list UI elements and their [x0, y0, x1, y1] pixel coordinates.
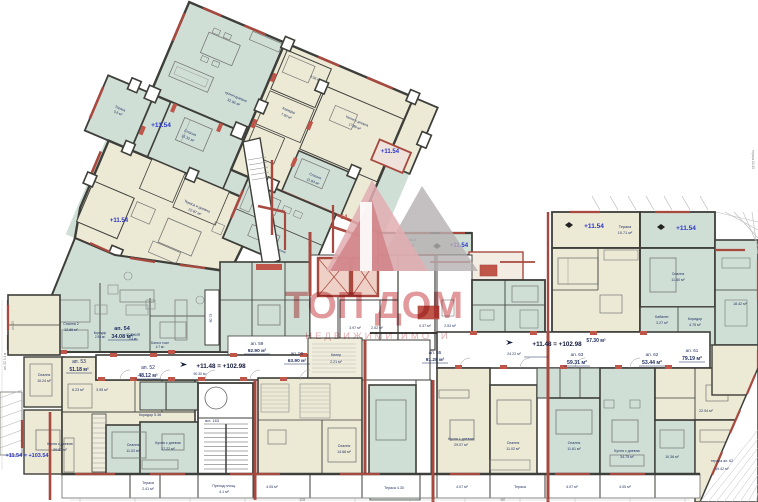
svg-text:53.44 м²: 53.44 м²: [642, 360, 662, 366]
svg-text:Кухня с дневна: Кухня с дневна: [47, 442, 72, 446]
svg-text:тераса 12.40: тераса 12.40: [751, 150, 755, 169]
svg-text:Коридор 5.36: Коридор 5.36: [139, 413, 161, 417]
svg-text:Преход площ.: Преход площ.: [212, 484, 235, 488]
svg-text:Спалня: Спалня: [568, 441, 581, 445]
svg-text:ап. 50: ап. 50: [291, 351, 304, 356]
svg-text:92.90 м²: 92.90 м²: [248, 348, 267, 354]
svg-text:Кухня с дневна: Кухня с дневна: [155, 441, 180, 445]
svg-text:+11.54 = +103.54: +11.54 = +103.54: [6, 453, 50, 459]
svg-text:+11.54: +11.54: [584, 223, 604, 230]
svg-text:19.42 м²: 19.42 м²: [715, 467, 729, 471]
svg-text:ап. 52 9.1 м: ап. 52 9.1 м: [3, 353, 7, 370]
svg-text:4.1 м²: 4.1 м²: [219, 490, 229, 494]
svg-text:50.30 м²: 50.30 м²: [194, 372, 208, 376]
svg-text:Кухня с дневна: Кухня с дневна: [614, 449, 639, 453]
svg-text:Тераса: Тераса: [514, 485, 526, 489]
svg-text:ап. 52: ап. 52: [141, 365, 155, 371]
svg-text:11.80 м²: 11.80 м²: [671, 278, 685, 282]
svg-text:2.98 м²: 2.98 м²: [95, 335, 105, 339]
svg-text:Кухня с дневна: Кухня с дневна: [448, 437, 473, 441]
svg-text:ТОП ДОМ: ТОП ДОМ: [285, 285, 463, 327]
svg-text:Спалня 2: Спалня 2: [63, 322, 79, 326]
svg-text:Килер: Килер: [331, 353, 341, 357]
svg-text:Спалня: Спалня: [38, 373, 51, 377]
svg-text:Спалня: Спалня: [127, 443, 140, 447]
svg-text:4.05 м²: 4.05 м²: [266, 485, 278, 489]
svg-text:22.94 м²: 22.94 м²: [699, 409, 713, 413]
svg-text:Тераса: Тераса: [142, 481, 154, 485]
svg-text:ап. 53: ап. 53: [72, 359, 86, 365]
svg-text:54: 54: [341, 215, 348, 221]
svg-text:ап. 63: ап. 63: [571, 352, 584, 357]
svg-text:4.07 м²: 4.07 м²: [566, 485, 578, 489]
svg-text:59.31 м²: 59.31 м²: [567, 360, 587, 366]
svg-text:Кабинет: Кабинет: [655, 315, 669, 319]
svg-text:60.73: 60.73: [209, 314, 213, 323]
svg-text:2.41 м²: 2.41 м²: [142, 487, 154, 491]
svg-text:+11.48 = +102.98: +11.48 = +102.98: [532, 341, 582, 348]
svg-text:Тераса: Тераса: [619, 225, 632, 229]
svg-text:2.21 м²: 2.21 м²: [330, 360, 342, 364]
svg-text:10.24 м²: 10.24 м²: [37, 379, 51, 383]
svg-text:51.18 м²: 51.18 м²: [69, 367, 89, 373]
svg-text:6.23 м²: 6.23 м²: [72, 388, 84, 392]
svg-text:Спалня: Спалня: [338, 444, 351, 448]
svg-text:ап. 59: ап. 59: [251, 341, 264, 346]
svg-text:63.90 м²: 63.90 м²: [288, 358, 307, 364]
svg-text:20.82 м²: 20.82 м²: [53, 448, 67, 452]
svg-text:тераса ап. 62: тераса ап. 62: [711, 459, 733, 463]
svg-text:11.03 м²: 11.03 м²: [126, 449, 140, 453]
svg-text:12.86 м²: 12.86 м²: [64, 328, 78, 332]
svg-text:48.12 м²: 48.12 м²: [138, 373, 158, 379]
svg-text:17.22 м²: 17.22 м²: [161, 447, 175, 451]
svg-text:11.61 м²: 11.61 м²: [567, 447, 581, 451]
svg-text:34.75 м²: 34.75 м²: [620, 455, 634, 459]
svg-text:4.7 м²: 4.7 м²: [156, 345, 165, 349]
svg-text:10.36 м²: 10.36 м²: [665, 455, 679, 459]
svg-text:+11.54: +11.54: [110, 218, 129, 224]
svg-text:57.30 м²: 57.30 м²: [586, 338, 606, 344]
svg-text:4.07 м²: 4.07 м²: [456, 485, 468, 489]
svg-text:Тераса 4.30: Тераса 4.30: [384, 486, 404, 490]
svg-text:ап. 54: ап. 54: [114, 326, 130, 332]
svg-text:ап. 53: ап. 53: [11, 321, 15, 330]
svg-text:Спалня: Спалня: [672, 272, 685, 276]
svg-text:Спалня: Спалня: [507, 441, 520, 445]
svg-text:4.75 м²: 4.75 м²: [689, 323, 701, 327]
svg-text:3.27 м²: 3.27 м²: [656, 321, 668, 325]
svg-text:ап. 65: ап. 65: [429, 350, 442, 355]
svg-text:+11.54: +11.54: [151, 122, 171, 129]
svg-text:3.95 м²: 3.95 м²: [96, 388, 108, 392]
svg-text:24.22 м²: 24.22 м²: [507, 352, 521, 356]
svg-text:+11.54: +11.54: [676, 225, 696, 232]
svg-text:Коридор: Коридор: [688, 317, 702, 321]
svg-text:29.07 м²: 29.07 м²: [454, 443, 468, 447]
svg-text:10.71 м²: 10.71 м²: [618, 231, 633, 235]
svg-text:+11.48 = +102.98: +11.48 = +102.98: [196, 363, 246, 370]
svg-text:91.28 м²: 91.28 м²: [426, 357, 445, 363]
svg-text:ап. 62: ап. 62: [646, 352, 659, 357]
svg-text:34.08 м²: 34.08 м²: [111, 333, 132, 340]
svg-text:18.42 м²: 18.42 м²: [733, 302, 747, 306]
svg-text:14.68 м²: 14.68 м²: [337, 450, 351, 454]
svg-text:ап. 61: ап. 61: [686, 348, 699, 353]
svg-text:4.05 м²: 4.05 м²: [619, 485, 631, 489]
svg-text:+11.54: +11.54: [381, 149, 400, 155]
svg-text:вст. 163: вст. 163: [205, 419, 219, 423]
svg-text:11.02 м²: 11.02 м²: [506, 447, 520, 451]
svg-text:НЕДВИЖИМИ ИМОТИ: НЕДВИЖИМИ ИМОТИ: [305, 331, 451, 342]
svg-text:79.19 м²: 79.19 м²: [682, 356, 702, 362]
